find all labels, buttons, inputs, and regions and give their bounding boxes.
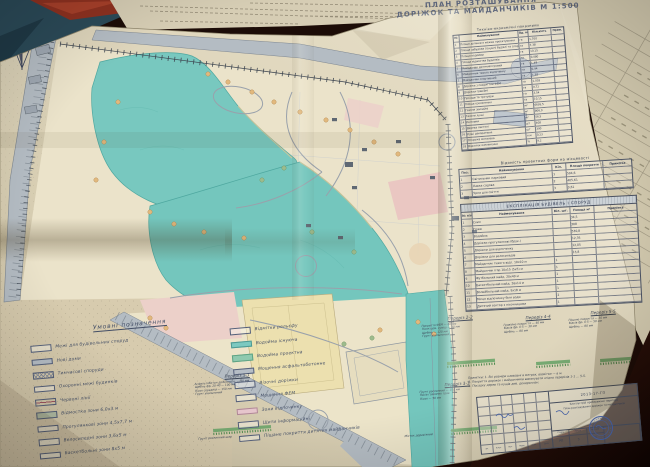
cell-area: 0,61 [567,182,605,191]
legend-swatch [232,354,253,362]
cell-quantity: 3 [553,184,567,192]
section-1-1: Переріз 1-1 Асфальтобетон дрібнозерн. — … [194,370,284,441]
legend-label: Нові доми [56,356,81,363]
legend-swatch [37,425,58,433]
indicators-table: Техніко-економічні показники № Найменува… [452,21,573,151]
legend-label: Велосипедні зони 3,6х5 м [63,433,127,444]
photo-of-site-plan-drawing: ПЛАН РОЗТАШУВАННЯ ДОРІЖОК ТА МАЙДАНЧИКІВ… [0,0,650,467]
legend-swatch [230,327,251,335]
revision-header-cell: Кільк. [493,444,505,453]
legend-label: Охоронні межі будинків [59,380,118,390]
legend-swatch [40,451,61,459]
sheets-cell: Аркушів 7 [587,427,606,444]
legend-label: Відмостка зони 6,0х3 м [61,407,119,417]
cell-quantity: 1 [557,298,575,306]
cell-note [560,136,573,143]
revision-header-cell: №док. [517,442,529,451]
cell-number: 13 [466,303,477,311]
legend-label: Тимчасові споруди [58,368,104,377]
cell-note [599,295,641,304]
sheet-cell: Аркуш 3 [570,428,589,445]
legend-swatch [31,358,52,366]
legend-title: Умовні позначення [93,318,167,332]
legend-swatch [38,438,59,446]
cell-unit: % [527,139,537,146]
explication-table: ЕКСПЛІКАЦІЯ БУДІВЕЛЬ І СПОРУД № п/п Найм… [460,195,642,312]
legend-swatch [34,385,55,393]
explication-table-rows: 1 Схил 34,5 2 Пляж 308 3 Водойма [462,211,642,311]
revision-grid: Зм.Кільк.Арк.№док.Підп.Дата [477,392,554,454]
cell-number: 3 [461,190,473,198]
revision-header-cell: Підп. [528,441,540,450]
legend-swatch [30,345,51,353]
revision-header-cell: Зм. [481,445,493,454]
cell-area [575,297,600,305]
legend-swatch [231,340,252,348]
cell-quantity: 9,2 [537,137,560,145]
title-block-right: 2013-17-ГП Благоустрій прибережної терит… [549,384,642,447]
legend-swatch [36,411,57,419]
legend-swatch [33,371,54,379]
revision-header-cell: Дата [540,440,552,449]
indicators-table-rows: 1 Площа ділянки в межах проектування га … [454,34,572,150]
stage-cell: Стадія РП [552,430,571,447]
legend-label: Відмітки рельєфу [255,324,299,333]
legend-swatch [35,398,56,406]
legend-label: Водойма існуюча [256,337,298,346]
legend-label: Водойма проектна [257,350,303,359]
legend-label: Баскетбольні зони 8х5 м [65,446,126,456]
cell-note [605,180,633,189]
revision-header-cell: Арк. [505,443,517,452]
legend-label: Червоні лінії [60,396,91,404]
stamp-area [604,424,641,443]
